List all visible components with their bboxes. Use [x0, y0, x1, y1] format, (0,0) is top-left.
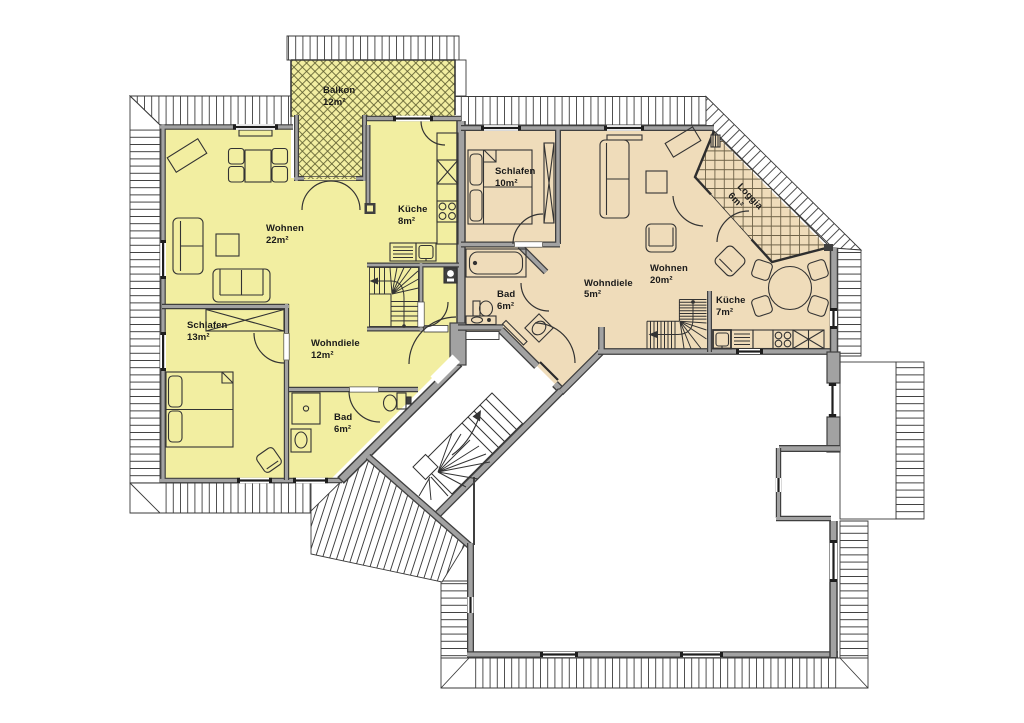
svg-text:Bad: Bad: [334, 412, 352, 423]
svg-text:Balkon: Balkon: [323, 85, 355, 96]
svg-text:12m²: 12m²: [311, 350, 334, 361]
svg-text:5m²: 5m²: [584, 289, 601, 300]
svg-text:7m²: 7m²: [716, 307, 733, 318]
svg-text:13m²: 13m²: [187, 332, 210, 343]
svg-text:Wohndiele: Wohndiele: [311, 338, 360, 349]
svg-text:Schlafen: Schlafen: [187, 320, 227, 331]
svg-text:Küche: Küche: [716, 295, 746, 306]
svg-text:12m²: 12m²: [323, 97, 346, 108]
svg-text:6m²: 6m²: [334, 424, 351, 435]
svg-text:Küche: Küche: [398, 204, 428, 215]
svg-text:8m²: 8m²: [398, 216, 415, 227]
svg-text:Wohnen: Wohnen: [266, 223, 304, 234]
svg-text:20m²: 20m²: [650, 275, 673, 286]
svg-text:Bad: Bad: [497, 289, 515, 300]
svg-text:6m²: 6m²: [497, 301, 514, 312]
svg-text:Schlafen: Schlafen: [495, 166, 535, 177]
svg-text:Wohnen: Wohnen: [650, 263, 688, 274]
svg-text:Wohndiele: Wohndiele: [584, 278, 633, 289]
svg-text:22m²: 22m²: [266, 235, 289, 246]
svg-text:10m²: 10m²: [495, 178, 518, 189]
